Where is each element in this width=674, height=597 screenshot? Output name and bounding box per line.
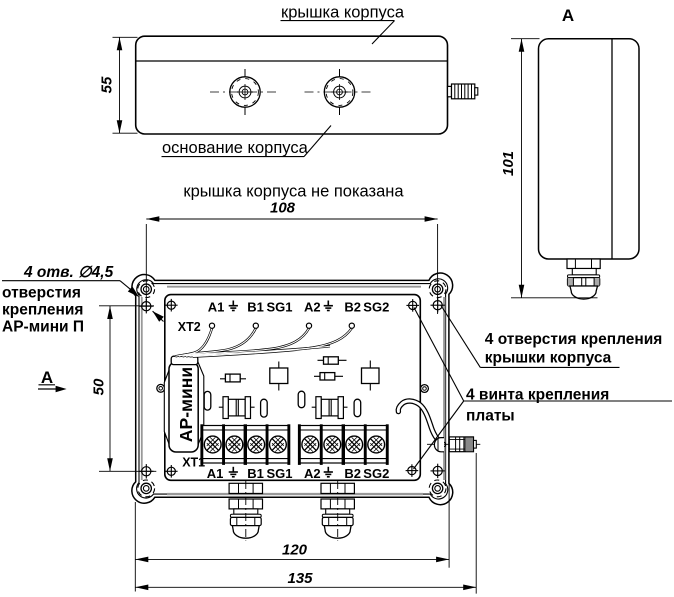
svg-text:платы: платы (466, 408, 515, 425)
svg-text:крышки корпуса: крышки корпуса (485, 350, 612, 367)
svg-text:А: А (562, 6, 574, 25)
svg-text:крышка корпуса: крышка корпуса (281, 4, 405, 22)
svg-text:АР-мини П: АР-мини П (2, 319, 84, 336)
svg-text:4 отв. ∅4,5: 4 отв. ∅4,5 (23, 264, 114, 281)
svg-text:101: 101 (500, 151, 517, 176)
svg-text:SG2: SG2 (363, 300, 389, 315)
svg-text:АР-мини: АР-мини (176, 367, 196, 442)
svg-text:50: 50 (91, 378, 108, 395)
svg-text:B1: B1 (247, 466, 264, 481)
svg-text:крышка корпуса не показана: крышка корпуса не показана (183, 183, 404, 201)
svg-text:крепления: крепления (2, 302, 83, 319)
svg-text:B2: B2 (344, 466, 361, 481)
svg-text:SG1: SG1 (266, 300, 292, 315)
svg-text:SG2: SG2 (363, 466, 389, 481)
svg-text:A2: A2 (304, 300, 321, 315)
svg-text:SG1: SG1 (266, 466, 292, 481)
svg-text:А: А (41, 368, 53, 387)
svg-text:основание корпуса: основание корпуса (162, 139, 309, 157)
svg-text:108: 108 (270, 200, 296, 217)
svg-text:135: 135 (287, 570, 313, 587)
svg-text:120: 120 (282, 542, 308, 559)
svg-text:B2: B2 (344, 300, 361, 315)
svg-text:B1: B1 (247, 300, 264, 315)
svg-text:A1: A1 (208, 300, 225, 315)
svg-text:55: 55 (99, 76, 116, 93)
svg-text:A1: A1 (207, 466, 224, 481)
svg-text:XT2: XT2 (178, 320, 201, 334)
svg-text:отверстия: отверстия (2, 285, 81, 302)
svg-text:A2: A2 (304, 466, 321, 481)
svg-text:4 отверстия крепления: 4 отверстия крепления (485, 331, 663, 348)
